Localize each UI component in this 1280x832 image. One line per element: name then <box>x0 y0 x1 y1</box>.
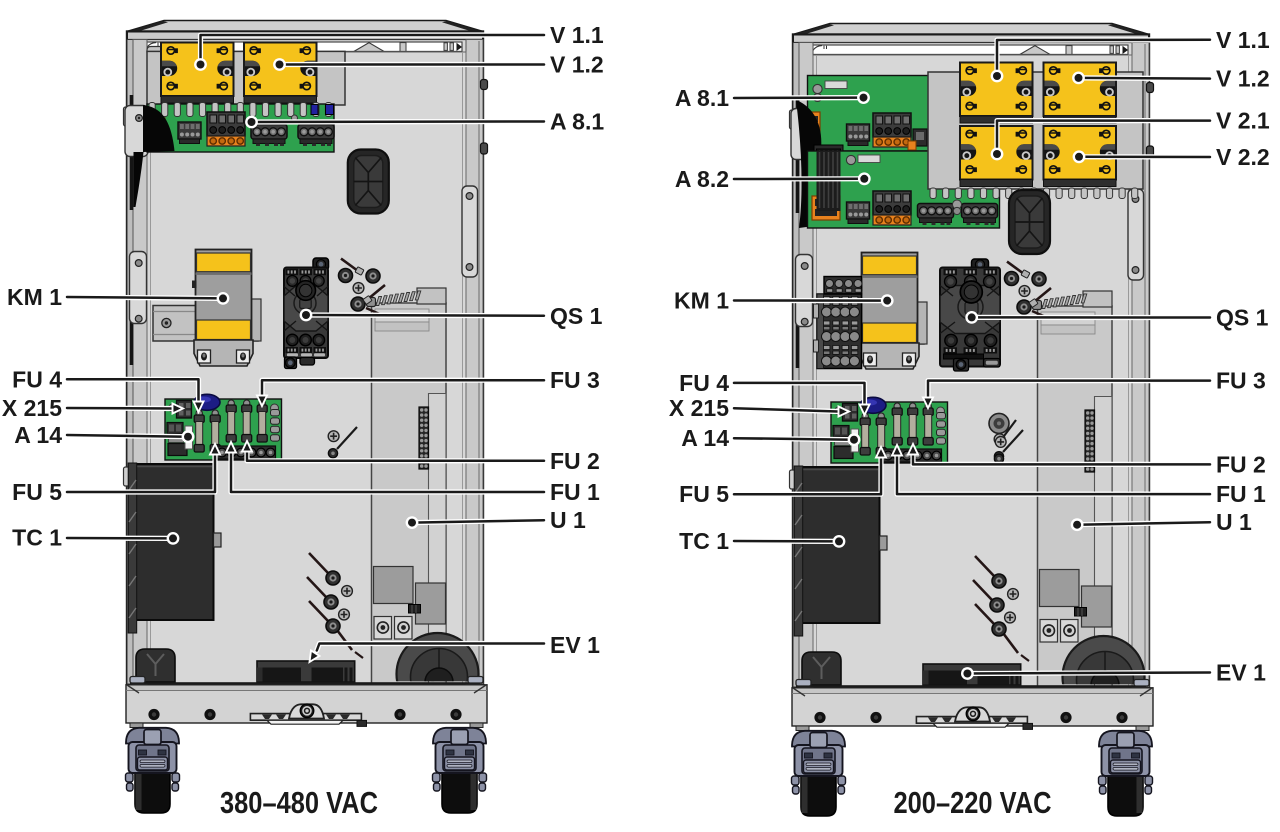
svg-text:U 1: U 1 <box>1216 509 1252 535</box>
svg-text:TC 1: TC 1 <box>679 528 729 554</box>
svg-text:X 215: X 215 <box>669 395 729 421</box>
svg-text:U 1: U 1 <box>550 507 586 533</box>
svg-text:380–480 VAC: 380–480 VAC <box>220 785 378 820</box>
svg-text:V 2.2: V 2.2 <box>1216 144 1270 170</box>
svg-text:QS 1: QS 1 <box>1216 305 1269 331</box>
svg-text:FU 3: FU 3 <box>550 367 600 393</box>
svg-text:FU 4: FU 4 <box>679 370 729 396</box>
svg-text:A 8.1: A 8.1 <box>675 85 729 111</box>
svg-text:FU 2: FU 2 <box>1216 451 1266 477</box>
svg-text:V 1.2: V 1.2 <box>550 52 604 78</box>
svg-text:A 8.2: A 8.2 <box>675 166 729 192</box>
svg-text:A 14: A 14 <box>681 425 729 451</box>
svg-text:FU 1: FU 1 <box>550 479 600 505</box>
svg-text:FU 5: FU 5 <box>12 479 62 505</box>
svg-text:X 215: X 215 <box>2 395 62 421</box>
svg-text:A 8.1: A 8.1 <box>550 109 604 135</box>
svg-text:QS 1: QS 1 <box>550 303 603 329</box>
svg-text:A 14: A 14 <box>14 422 62 448</box>
svg-text:FU 1: FU 1 <box>1216 481 1266 507</box>
svg-text:TC 1: TC 1 <box>12 524 62 550</box>
svg-text:V 1.2: V 1.2 <box>1216 66 1270 92</box>
svg-text:KM 1: KM 1 <box>7 284 62 310</box>
svg-text:V 2.1: V 2.1 <box>1216 108 1270 134</box>
svg-text:EV 1: EV 1 <box>550 632 600 658</box>
svg-text:KM 1: KM 1 <box>674 288 729 314</box>
svg-text:FU 4: FU 4 <box>12 366 62 392</box>
svg-text:V 1.1: V 1.1 <box>550 22 604 48</box>
svg-text:V 1.1: V 1.1 <box>1216 27 1270 53</box>
svg-text:FU 3: FU 3 <box>1216 368 1266 394</box>
svg-text:FU 5: FU 5 <box>679 481 729 507</box>
svg-text:FU 2: FU 2 <box>550 448 600 474</box>
svg-text:EV 1: EV 1 <box>1216 660 1266 686</box>
svg-text:200–220 VAC: 200–220 VAC <box>894 785 1052 820</box>
